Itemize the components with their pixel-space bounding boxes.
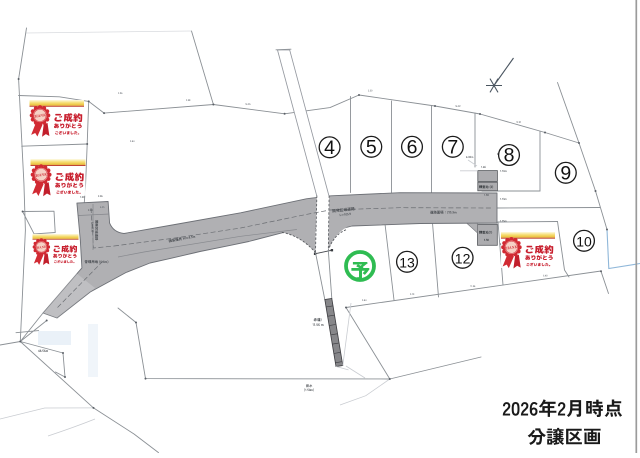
svg-text:8: 8	[504, 145, 515, 167]
svg-text:4: 4	[324, 137, 335, 159]
svg-text:10: 10	[576, 233, 592, 249]
svg-text:6: 6	[407, 136, 418, 158]
svg-text:9: 9	[560, 162, 571, 184]
svg-text:13: 13	[399, 254, 415, 270]
svg-text:7: 7	[447, 136, 458, 158]
svg-text:12: 12	[455, 250, 471, 266]
svg-text:5: 5	[366, 136, 377, 158]
